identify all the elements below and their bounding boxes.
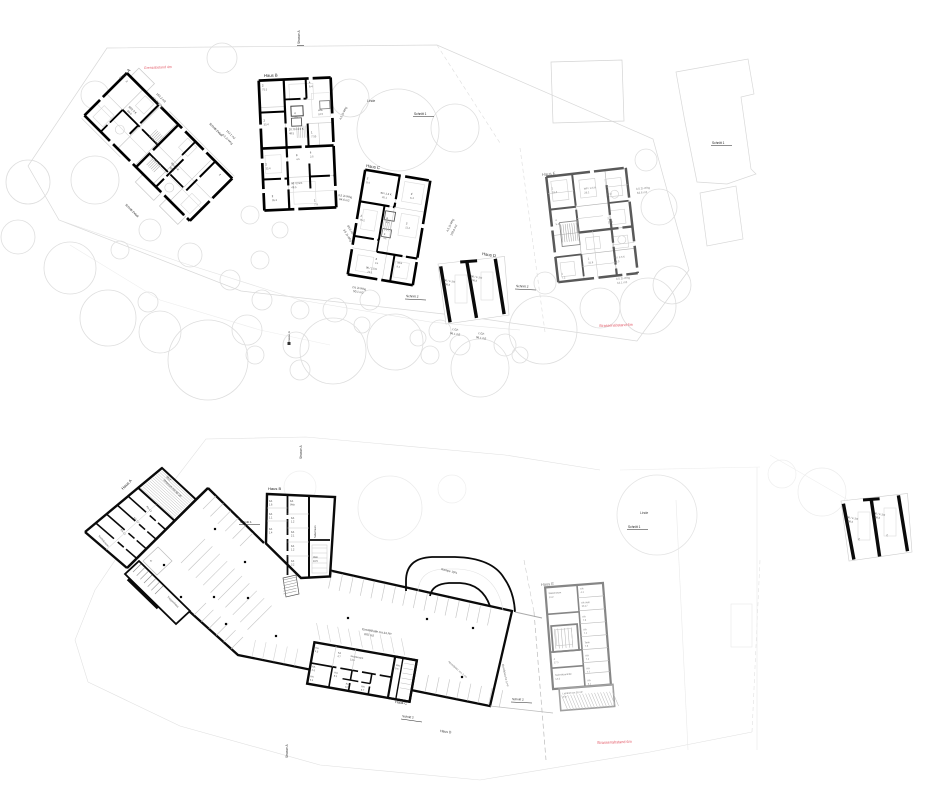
svg-text:Tr: Tr [150,560,152,563]
svg-text:75.5: 75.5 [262,87,268,91]
svg-text:Schnitt 1: Schnitt 1 [414,112,427,116]
svg-text:Strasse A: Strasse A [299,444,303,459]
svg-text:Schnitt 1: Schnitt 1 [628,525,641,529]
svg-text:90 / 2.5 K: 90 / 2.5 K [291,181,303,185]
svg-text:48.5: 48.5 [289,131,295,135]
svg-text:Schnitt 2: Schnitt 2 [516,284,529,289]
svg-text:Schnitt 2: Schnitt 2 [512,697,524,702]
svg-text:Strasse A: Strasse A [297,29,301,44]
svg-text:Schnitt 1: Schnitt 1 [240,520,252,524]
svg-text:Schnitt 1: Schnitt 1 [712,141,725,145]
svg-text:48.5: 48.5 [291,185,297,189]
svg-text:Strasse A: Strasse A [285,743,289,758]
svg-text:20.73 / 2.5 K: 20.73 / 2.5 K [289,127,304,132]
svg-text:35.4: 35.4 [265,166,271,170]
svg-text:35.2: 35.2 [272,198,278,202]
svg-text:35.4: 35.4 [264,122,270,126]
svg-text:Haus B: Haus B [264,73,278,78]
svg-text:4 m: 4 m [563,695,567,698]
svg-text:Linde: Linde [367,99,375,103]
svg-text:Schnitt 2: Schnitt 2 [406,294,419,299]
svg-text:10.5: 10.5 [313,560,318,563]
svg-text:Haus B: Haus B [268,486,281,491]
svg-text:10.5: 10.5 [318,113,323,116]
svg-text:Nebenraum: Nebenraum [314,526,317,539]
svg-text:Velo: Velo [313,556,318,559]
svg-text:26 17: 26 17 [582,605,589,609]
svg-text:7.55: 7.55 [311,134,317,138]
svg-text:Velo: Velo [290,503,295,506]
svg-text:Linde: Linde [640,511,648,515]
